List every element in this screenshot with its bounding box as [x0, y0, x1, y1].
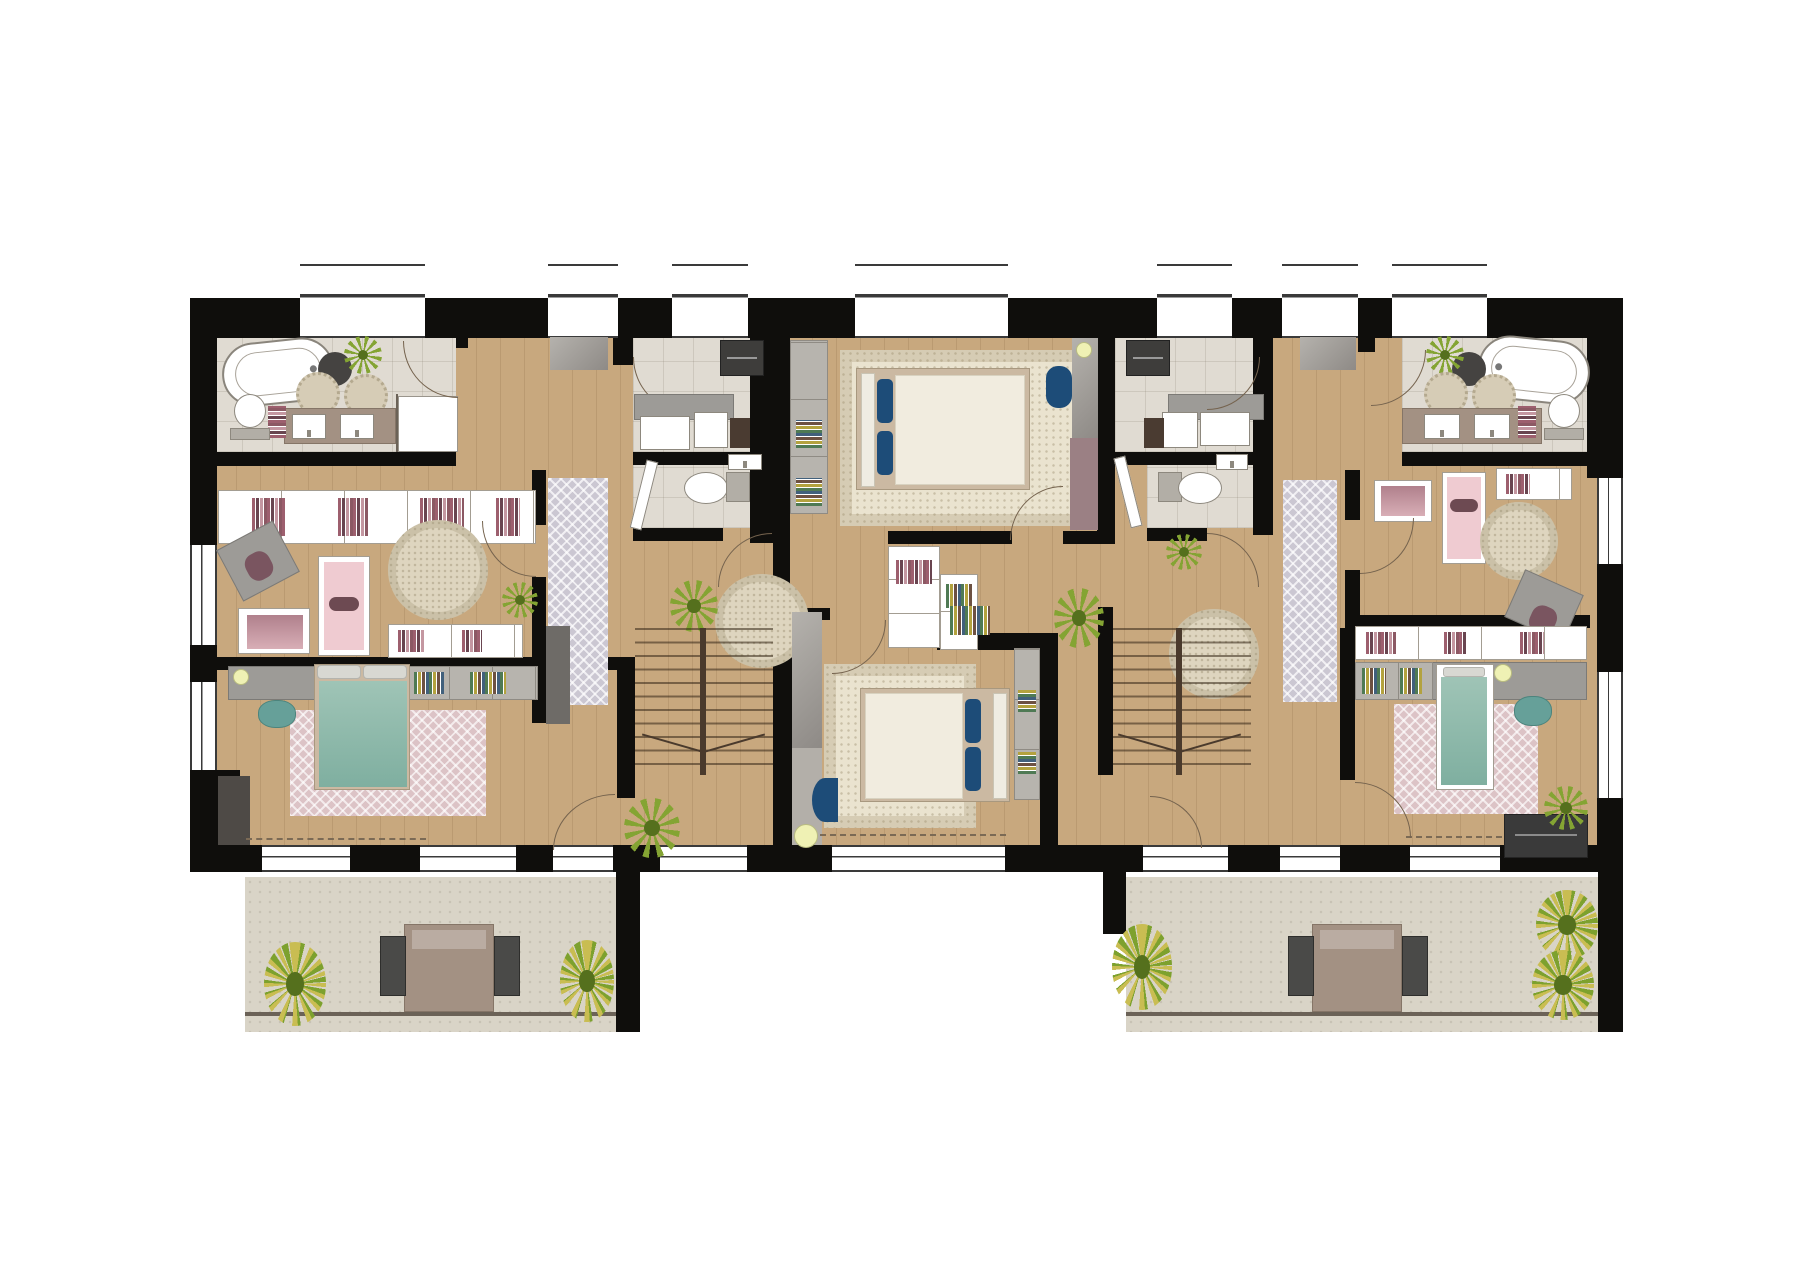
wall-bottom	[1228, 845, 1280, 872]
wall-bottom	[190, 845, 262, 872]
double-bed	[314, 664, 410, 790]
books	[414, 672, 444, 694]
wall-kids-right	[1345, 470, 1360, 520]
potted-plant-icon	[624, 798, 680, 858]
toilet-bowl	[1548, 394, 1580, 428]
terrace-plant	[1112, 924, 1172, 1010]
books	[896, 560, 932, 584]
kids-bed	[1442, 472, 1486, 564]
kids-bed-blanket	[1381, 486, 1425, 516]
kids-bed-blanket	[1447, 477, 1481, 559]
stair-stringer	[700, 628, 706, 775]
bookshelf	[1014, 648, 1040, 800]
wall-top	[1358, 298, 1392, 338]
washbasin	[1424, 414, 1460, 439]
single-bed	[1436, 664, 1494, 790]
kids-bed-pillow	[329, 597, 359, 611]
dressing-cabinet	[550, 337, 608, 370]
window	[420, 845, 516, 872]
window	[1410, 845, 1500, 872]
books	[338, 498, 368, 536]
wall-master-left	[617, 670, 635, 798]
outdoor-table	[1312, 924, 1402, 1012]
bed-pillow	[877, 431, 893, 475]
bed-blanket	[865, 693, 963, 799]
kids-bed-pillow	[1450, 499, 1478, 512]
wardrobe	[218, 776, 250, 845]
washing-machine	[1126, 340, 1170, 376]
dressing-cabinet	[1300, 337, 1356, 370]
books	[1018, 690, 1036, 712]
books	[946, 584, 972, 608]
terrace-plant	[264, 942, 326, 1026]
wall-kids-right	[1345, 570, 1360, 615]
wall-bedroom-bottom	[1040, 633, 1058, 845]
window	[190, 545, 217, 645]
terrace-pier	[616, 850, 640, 1032]
toilet-bowl	[684, 472, 728, 504]
armchair	[812, 778, 838, 822]
wall-top	[1232, 298, 1282, 338]
towel-ladder	[268, 406, 286, 438]
shelf-books	[950, 606, 990, 635]
wall-right-corner	[1587, 338, 1623, 478]
toilet-tank	[1544, 428, 1584, 440]
laundry-cabinet	[1144, 418, 1164, 448]
dresser	[1070, 438, 1098, 530]
laundry-appliance	[640, 416, 690, 450]
books	[462, 630, 482, 652]
books	[1520, 632, 1544, 654]
wall-stub	[613, 338, 633, 365]
bed-blanket	[319, 681, 407, 787]
potted-plant-icon	[344, 336, 382, 374]
stool	[794, 824, 818, 848]
outdoor-table	[404, 924, 494, 1012]
wall-bottom	[350, 845, 420, 872]
laundry-appliance	[1200, 412, 1250, 446]
bed-headboard	[861, 373, 875, 487]
towel-ladder	[1518, 406, 1536, 438]
bed-pillow	[877, 379, 893, 423]
washbasin	[1474, 414, 1510, 439]
bed-pillow	[965, 699, 981, 743]
floor-pouf	[1046, 366, 1072, 408]
wall-top	[748, 298, 855, 338]
window	[190, 682, 217, 770]
desk-lamp	[1494, 664, 1512, 682]
staircase-right	[1113, 628, 1251, 775]
wall-bottom	[1005, 845, 1103, 872]
desk-chair	[1514, 696, 1552, 726]
wall-bedroom-right	[1340, 628, 1355, 780]
wall-bedroom-top	[888, 531, 1012, 544]
books	[1400, 668, 1422, 694]
books	[796, 420, 822, 448]
toilet-tank	[230, 428, 270, 440]
books	[1506, 474, 1530, 494]
wardrobe	[792, 612, 822, 748]
kids-bed-blanket	[247, 615, 303, 649]
window	[548, 264, 618, 338]
washbasin	[340, 414, 374, 439]
wall-wc-right	[1097, 452, 1112, 535]
hall-wardrobe	[546, 626, 570, 724]
bed-pillow	[363, 665, 407, 679]
wall-bottom	[1340, 845, 1410, 872]
outdoor-chair	[1288, 936, 1314, 996]
wall-left	[190, 338, 217, 545]
wall-top	[190, 298, 300, 338]
outdoor-chair	[380, 936, 406, 996]
terrace-plant	[560, 940, 614, 1022]
toilet-bowl	[1178, 472, 1222, 504]
toilet-tank	[726, 472, 750, 502]
wc-handbasin	[728, 454, 762, 470]
window	[262, 845, 350, 872]
wall-bottom	[516, 845, 553, 872]
terrace-right-edge	[1126, 1012, 1598, 1016]
laundry-appliance	[1162, 412, 1198, 448]
wall-bathroom-right	[1402, 452, 1590, 466]
walk-in-shower	[398, 396, 458, 452]
floor-plan-canvas	[0, 0, 1811, 1280]
window	[1392, 264, 1487, 338]
wall-top-corner	[1487, 298, 1623, 338]
table-lamp	[1076, 342, 1092, 358]
wall-top	[618, 298, 672, 338]
outdoor-chair	[494, 936, 520, 996]
toilet-bowl	[234, 394, 266, 428]
terrace-plant	[1532, 950, 1594, 1020]
curtain	[246, 838, 426, 841]
curtain	[1406, 836, 1502, 839]
potted-plant-icon	[1166, 534, 1202, 570]
books	[470, 672, 506, 694]
window	[1597, 672, 1623, 798]
bed-pillow	[965, 747, 981, 791]
potted-plant-icon	[1544, 786, 1588, 830]
wall-bottom	[747, 845, 832, 872]
books	[1366, 632, 1396, 654]
wall-top	[1008, 298, 1157, 338]
runner-rug	[1283, 480, 1337, 702]
laundry-appliance	[694, 412, 728, 448]
bed-pillow	[1443, 667, 1485, 677]
potted-plant-icon	[502, 582, 538, 618]
books	[1018, 752, 1036, 774]
wall-right	[1597, 564, 1623, 672]
kids-bed	[238, 608, 310, 654]
books	[1444, 632, 1466, 654]
window	[660, 845, 747, 872]
potted-plant-icon	[1426, 336, 1464, 374]
terrace-door-right	[1143, 845, 1228, 872]
bed-headboard	[993, 693, 1007, 799]
wall-bathroom-left	[212, 452, 456, 466]
window	[1157, 264, 1232, 338]
window	[1282, 264, 1358, 338]
desk-chair	[258, 700, 296, 728]
window	[672, 264, 748, 338]
laundry-cabinet	[730, 418, 750, 448]
wall-bottom	[1103, 845, 1143, 872]
terrace-pier	[1103, 872, 1126, 934]
washbasin	[292, 414, 326, 439]
books	[796, 478, 822, 506]
double-bed	[860, 688, 1010, 802]
books	[1362, 668, 1386, 694]
shower-glass	[396, 394, 398, 452]
window	[300, 264, 425, 338]
washing-machine	[720, 340, 764, 376]
window	[855, 264, 1008, 338]
books	[398, 630, 424, 652]
window	[832, 845, 1005, 872]
kids-bed	[318, 556, 370, 656]
window	[1280, 845, 1340, 872]
outdoor-chair	[1402, 936, 1428, 996]
round-rug	[388, 520, 488, 620]
window	[1597, 478, 1623, 564]
bed-pillow	[317, 665, 361, 679]
wall-wc-left	[633, 528, 723, 541]
stair-stringer	[1176, 628, 1182, 775]
potted-plant-icon	[670, 580, 718, 632]
wc-handbasin	[1216, 454, 1248, 470]
double-bed	[856, 368, 1030, 490]
round-rug	[1480, 502, 1558, 580]
terrace-pier	[1598, 850, 1623, 1032]
wall-top	[425, 298, 548, 338]
kids-bed	[1374, 480, 1432, 522]
potted-plant-icon	[1054, 588, 1104, 648]
curtain	[820, 834, 1006, 837]
bed-blanket	[895, 375, 1025, 485]
desk-lamp	[233, 669, 249, 685]
bed-blanket	[1441, 677, 1487, 785]
